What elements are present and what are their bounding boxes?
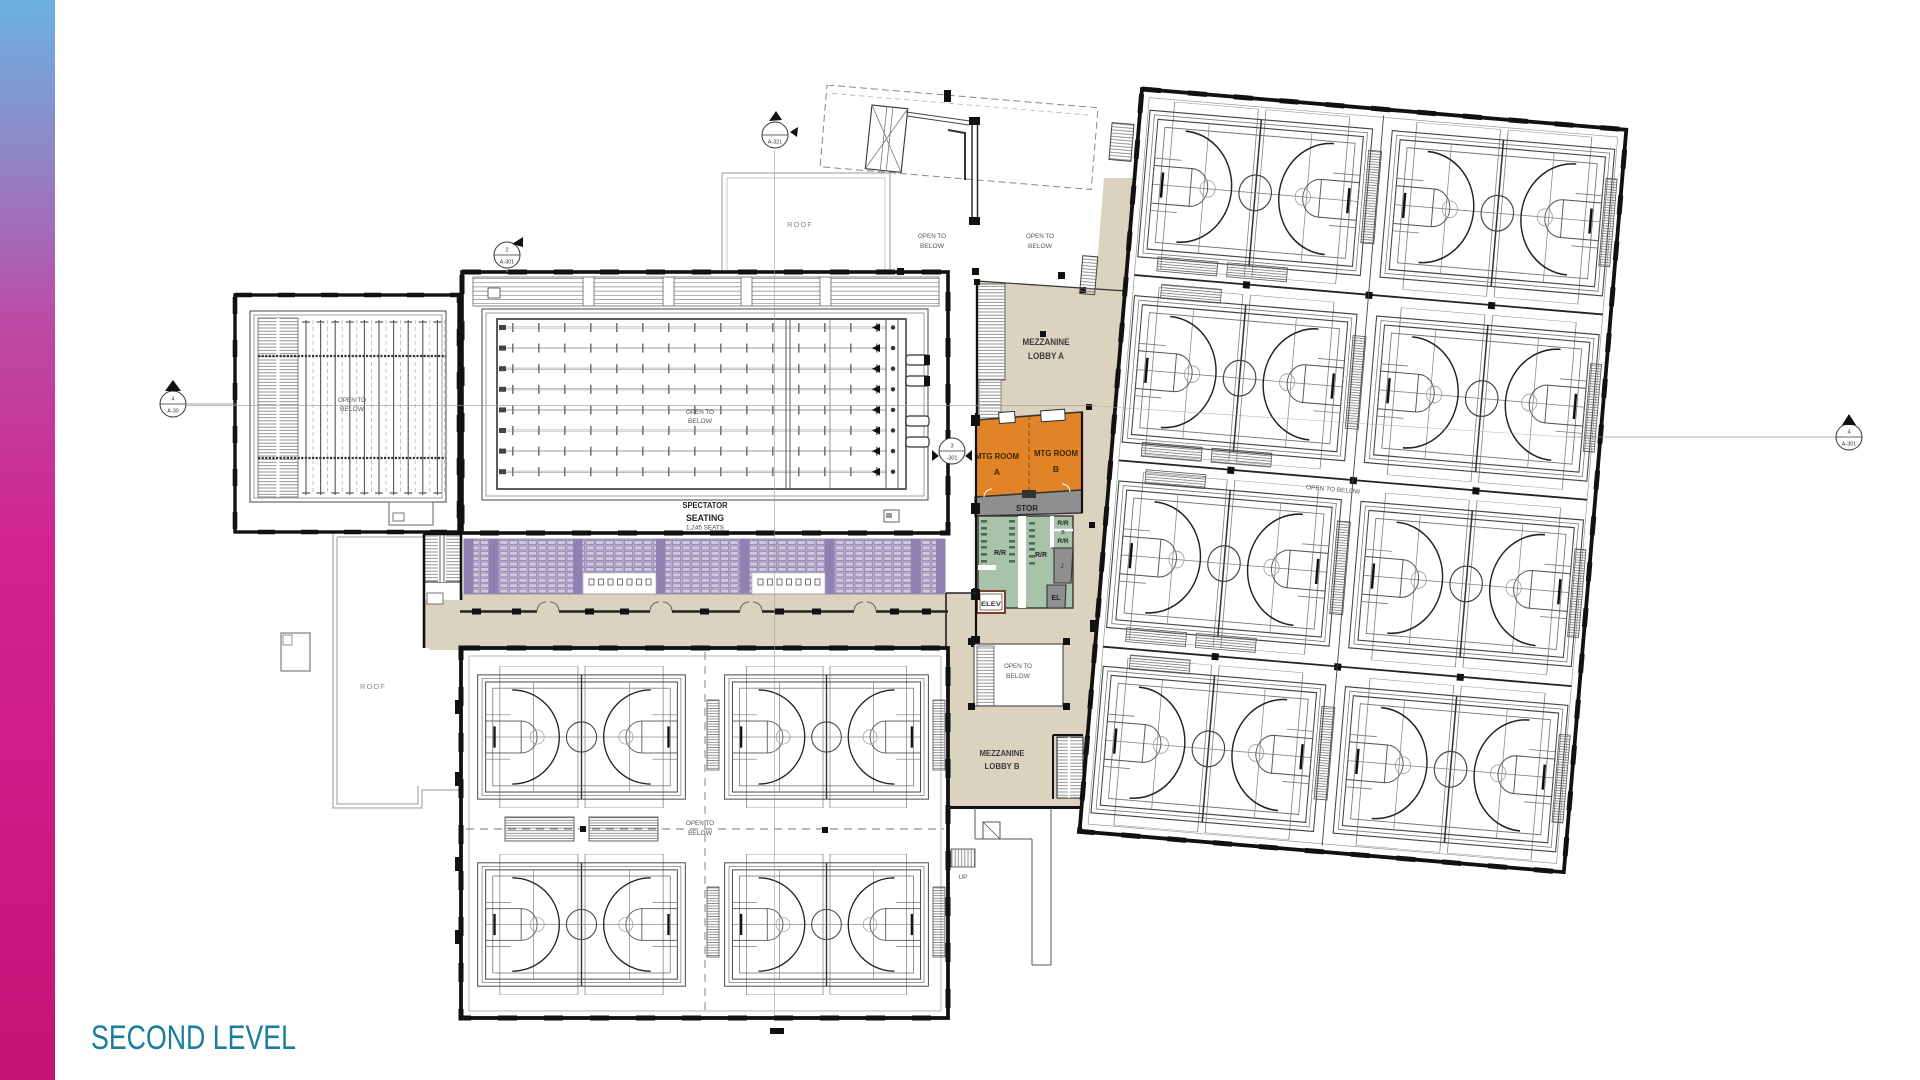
svg-text:MEZZANINE: MEZZANINE bbox=[1023, 337, 1070, 347]
svg-text:ELEV: ELEV bbox=[981, 601, 1002, 608]
svg-text:BELOW: BELOW bbox=[340, 406, 365, 413]
svg-text:SECOND LEVEL: SECOND LEVEL bbox=[91, 1019, 296, 1057]
svg-text:SEATING: SEATING bbox=[686, 513, 724, 523]
svg-text:MTG ROOM: MTG ROOM bbox=[975, 451, 1019, 461]
svg-text:ROOF: ROOF bbox=[787, 220, 813, 229]
svg-text:BELOW: BELOW bbox=[1028, 243, 1053, 250]
svg-text:R/R: R/R bbox=[994, 550, 1006, 557]
svg-text:B: B bbox=[1053, 464, 1059, 474]
svg-text:BELOW: BELOW bbox=[1006, 673, 1031, 680]
svg-text:R/R: R/R bbox=[1057, 538, 1069, 545]
svg-text:J: J bbox=[1060, 563, 1063, 570]
svg-text:-301: -301 bbox=[947, 456, 958, 462]
svg-text:A-30: A-30 bbox=[167, 409, 178, 415]
svg-text:3: 3 bbox=[951, 444, 954, 450]
svg-text:BELOW: BELOW bbox=[688, 418, 713, 425]
svg-text:BELOW: BELOW bbox=[688, 830, 713, 837]
svg-text:MTG ROOM: MTG ROOM bbox=[1034, 448, 1078, 458]
svg-text:OPEN TO: OPEN TO bbox=[1026, 233, 1054, 240]
svg-text:4: 4 bbox=[172, 397, 175, 403]
svg-text:1,245 SEATS: 1,245 SEATS bbox=[686, 526, 724, 532]
svg-text:STOR: STOR bbox=[1016, 504, 1038, 513]
svg-text:LOBBY A: LOBBY A bbox=[1028, 351, 1064, 361]
svg-text:OPEN TO: OPEN TO bbox=[686, 820, 714, 827]
svg-text:LOBBY B: LOBBY B bbox=[985, 761, 1020, 771]
svg-text:EL: EL bbox=[1052, 595, 1062, 602]
svg-text:OPEN TO: OPEN TO bbox=[338, 397, 366, 404]
svg-text:A-321: A-321 bbox=[768, 140, 782, 146]
svg-text:ROOF: ROOF bbox=[360, 682, 386, 691]
svg-text:OPEN TO: OPEN TO bbox=[918, 233, 946, 240]
svg-text:A-301: A-301 bbox=[1842, 442, 1856, 448]
svg-text:4: 4 bbox=[1848, 430, 1851, 436]
svg-text:SPECTATOR: SPECTATOR bbox=[683, 501, 728, 510]
svg-text:2: 2 bbox=[506, 248, 509, 254]
svg-text:OPEN TO: OPEN TO bbox=[1004, 663, 1032, 670]
svg-text:A-301: A-301 bbox=[500, 260, 514, 266]
svg-text:UP: UP bbox=[958, 874, 967, 881]
svg-text:OPEN TO: OPEN TO bbox=[686, 409, 714, 416]
svg-text:A: A bbox=[994, 467, 1000, 477]
svg-text:R/R: R/R bbox=[1035, 552, 1047, 559]
svg-text:MEZZANINE: MEZZANINE bbox=[980, 748, 1025, 758]
svg-text:BELOW: BELOW bbox=[920, 243, 945, 250]
svg-text:R/R: R/R bbox=[1057, 520, 1069, 527]
